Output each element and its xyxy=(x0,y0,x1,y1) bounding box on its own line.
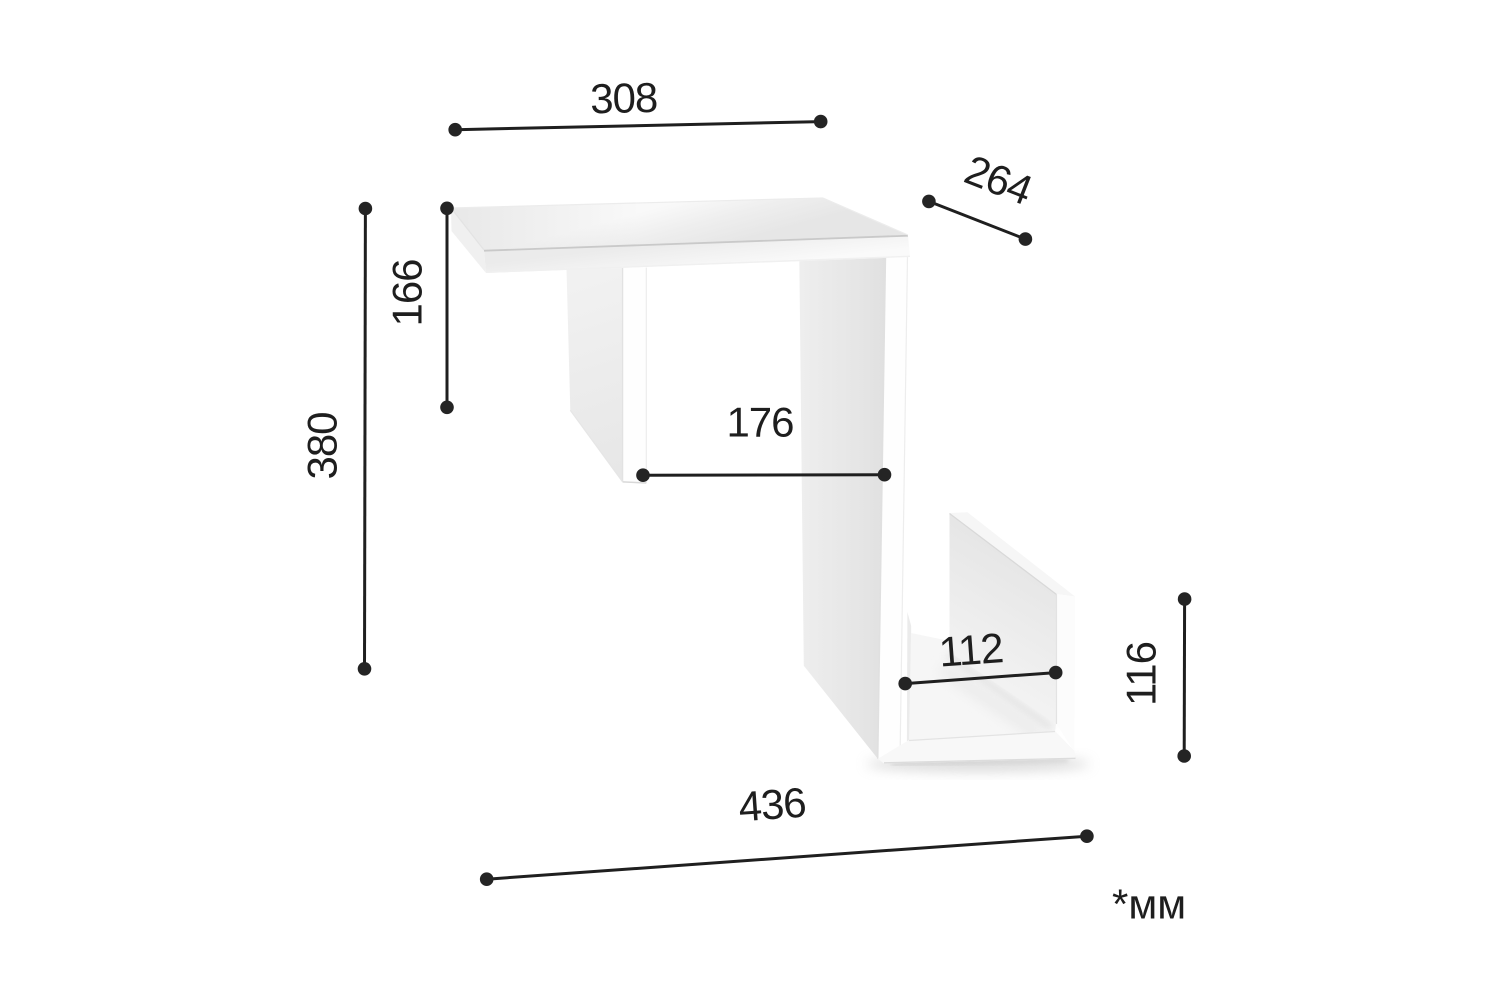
svg-text:264: 264 xyxy=(959,146,1039,214)
svg-text:380: 380 xyxy=(298,412,345,479)
svg-text:112: 112 xyxy=(937,624,1004,676)
svg-text:436: 436 xyxy=(737,779,807,831)
svg-text:176: 176 xyxy=(726,398,793,445)
svg-text:116: 116 xyxy=(1117,642,1164,706)
svg-text:166: 166 xyxy=(383,259,430,326)
svg-text:*мм: *мм xyxy=(1112,881,1186,928)
svg-text:308: 308 xyxy=(590,74,658,122)
